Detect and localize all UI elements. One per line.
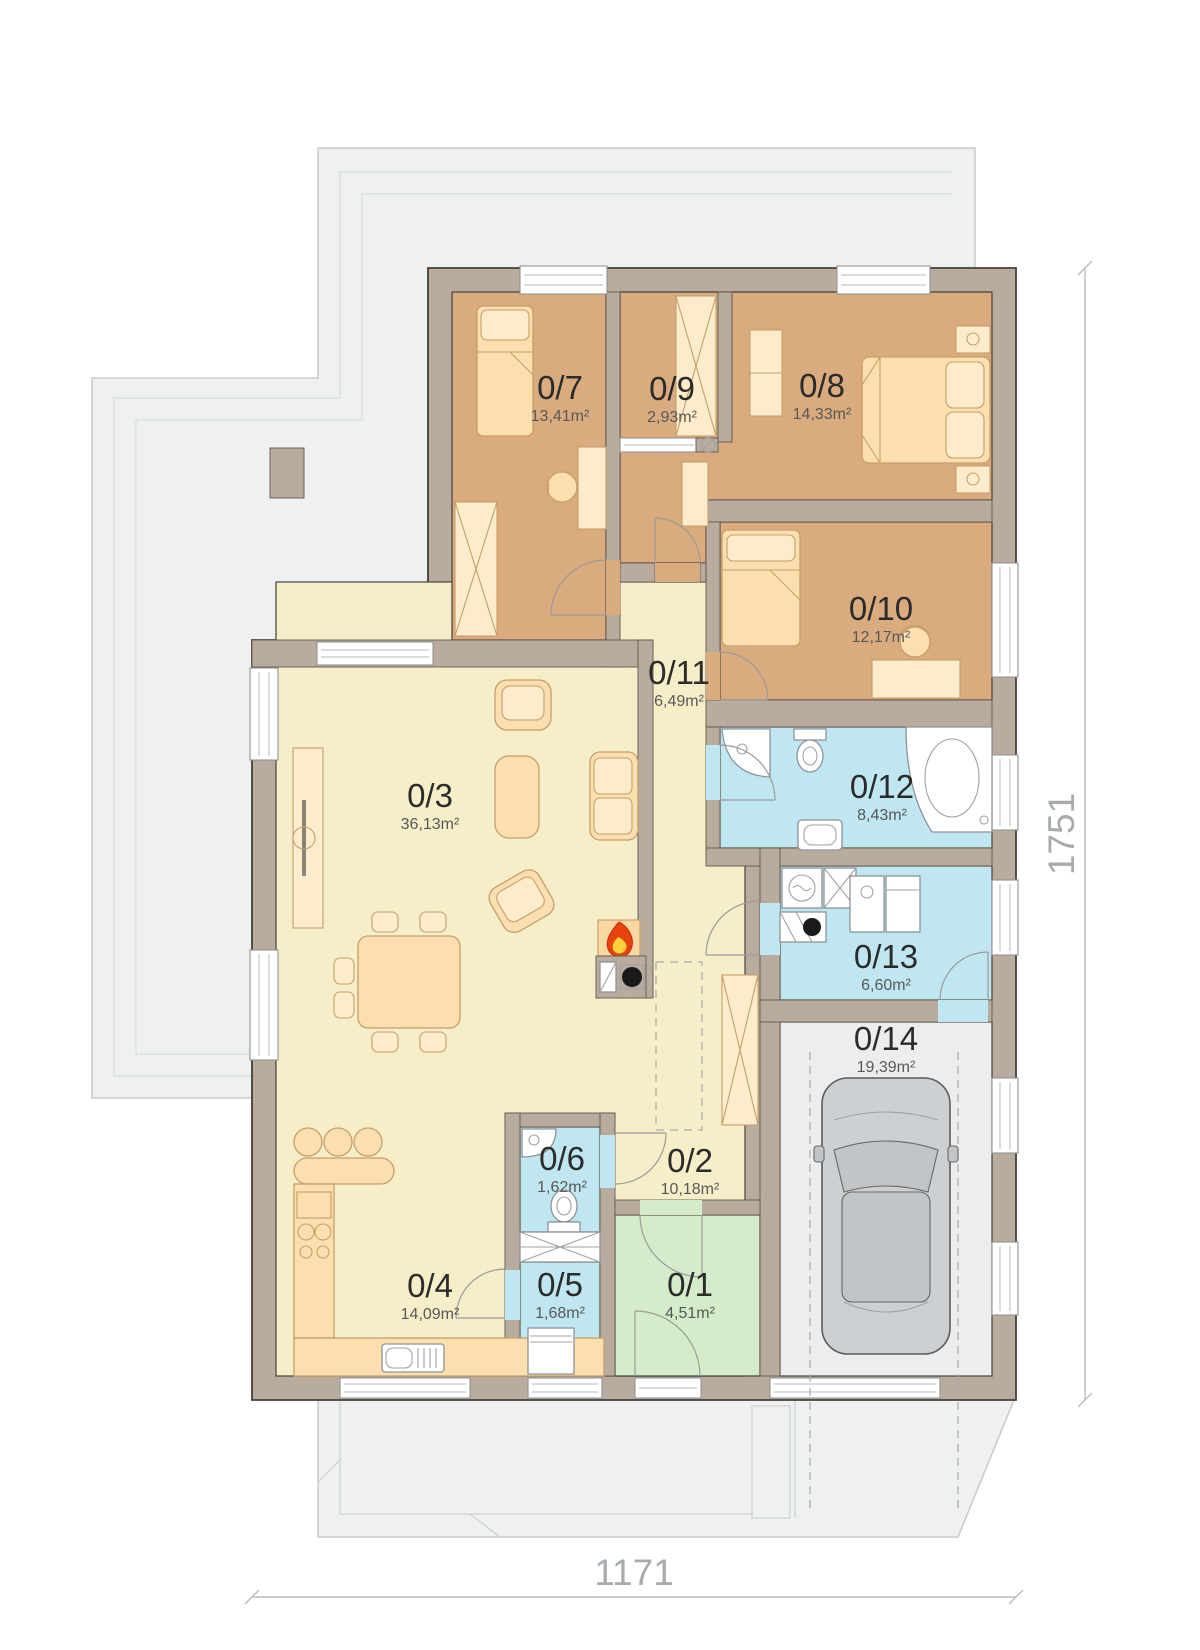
car-icon (814, 1078, 958, 1354)
nightstand-icon (956, 466, 990, 493)
boiler-icon (780, 912, 826, 942)
room-number-0-3: 0/3 (407, 777, 453, 814)
room-area-0-1: 4,51m² (665, 1305, 715, 1322)
room-area-0-10: 12,17m² (852, 629, 911, 646)
room-area-0-2: 10,18m² (661, 1181, 720, 1198)
terrace-column (270, 448, 304, 498)
room-area-0-12: 8,43m² (857, 807, 907, 824)
desk-icon (578, 447, 606, 529)
bar-stool-icon (294, 1128, 382, 1156)
kitchen-counter-icon (294, 1184, 334, 1338)
windshield (834, 1141, 938, 1192)
sofa-icon (590, 752, 638, 840)
toilet-icon (794, 729, 826, 772)
window-garage-1 (992, 1078, 1018, 1153)
room-number-0-4: 0/4 (407, 1267, 453, 1304)
room-number-0-6: 0/6 (539, 1140, 585, 1177)
room-area-0-6: 1,62m² (537, 1179, 587, 1196)
room-number-0-12: 0/12 (850, 768, 914, 805)
room-number-0-7: 0/7 (537, 369, 583, 406)
bed-icon (477, 306, 533, 436)
wardrobe-icon (455, 502, 497, 636)
room-area-0-4: 14,09m² (401, 1306, 460, 1323)
nightstand-icon (956, 326, 990, 353)
window-0-5 (528, 1378, 602, 1398)
room-number-0-11: 0/11 (648, 654, 710, 691)
dimension-right: 1751 (1041, 261, 1092, 1407)
kitchen-sink-icon (382, 1344, 444, 1372)
tv-cabinet-icon (293, 748, 323, 928)
room-area-0-7: 13,41m² (531, 408, 590, 425)
floor-plan-page: 0/7 13,41m² 0/9 2,93m² 0/8 14,33m² 0/10 … (0, 0, 1200, 1650)
flue-icon (622, 967, 642, 987)
appliance-icon (886, 876, 920, 932)
chair-icon (547, 472, 577, 502)
floor-plan-svg: 0/7 13,41m² 0/9 2,93m² 0/8 14,33m² 0/10 … (0, 0, 1200, 1650)
room-area-0-3: 36,13m² (401, 816, 460, 833)
window-living-left-1 (250, 668, 278, 760)
room-number-0-9: 0/9 (649, 370, 695, 407)
room-number-0-2: 0/2 (667, 1142, 713, 1179)
front-door-threshold (635, 1378, 701, 1398)
garage-door (770, 1378, 940, 1398)
wardrobe-icon (722, 975, 758, 1125)
washing-machine-icon (528, 1328, 574, 1374)
dining-table-icon (358, 936, 460, 1028)
dimension-height-label: 1751 (1041, 793, 1082, 875)
coffee-table-icon (495, 756, 539, 838)
shelf-niche (520, 1232, 600, 1262)
sink-icon (798, 820, 842, 850)
washing-machine-icon (782, 868, 822, 908)
window-kitchen (340, 1378, 470, 1398)
window-living-left-2 (250, 950, 278, 1060)
room-area-0-5: 1,68m² (535, 1305, 585, 1322)
room-number-0-10: 0/10 (849, 590, 913, 627)
desk-icon (872, 660, 960, 698)
mirror (814, 1146, 824, 1162)
fireplace (596, 920, 646, 998)
dimension-width-label: 1171 (594, 1552, 674, 1593)
driveway (318, 1400, 1014, 1537)
bed-icon (722, 530, 800, 646)
dresser-icon (750, 330, 782, 416)
room-number-0-13: 0/13 (854, 938, 918, 975)
window-0-7 (520, 266, 607, 294)
room-area-0-9: 2,93m² (647, 409, 697, 426)
room-area-0-11: 6,49m² (654, 693, 704, 710)
room-number-0-5: 0/5 (537, 1266, 583, 1303)
room-area-0-8: 14,33m² (793, 406, 852, 423)
room-number-0-1: 0/1 (667, 1266, 713, 1303)
mirror (948, 1146, 958, 1162)
room-area-0-14: 19,39m² (857, 1059, 916, 1076)
window-0-10 (992, 563, 1018, 677)
armchair-icon (495, 680, 551, 730)
dimension-bottom: 1171 (245, 1552, 1023, 1604)
utility-0-13-fixtures (780, 868, 920, 942)
window-living-top (317, 642, 433, 665)
shelf-icon (682, 462, 708, 526)
car-roof (842, 1192, 930, 1302)
window-garage-2 (992, 1242, 1018, 1315)
window-0-8 (837, 266, 930, 294)
room-number-0-8: 0/8 (799, 367, 845, 404)
room-area-0-13: 6,60m² (861, 977, 911, 994)
kitchen-bar-icon (294, 1158, 394, 1184)
window-0-13 (992, 880, 1018, 955)
room-number-0-14: 0/14 (854, 1020, 918, 1057)
double-bed-icon (862, 357, 990, 463)
tv-icon (302, 800, 306, 876)
appliance-icon (850, 876, 884, 932)
window-0-12 (992, 755, 1018, 830)
sliding-door-0-9 (620, 438, 718, 452)
